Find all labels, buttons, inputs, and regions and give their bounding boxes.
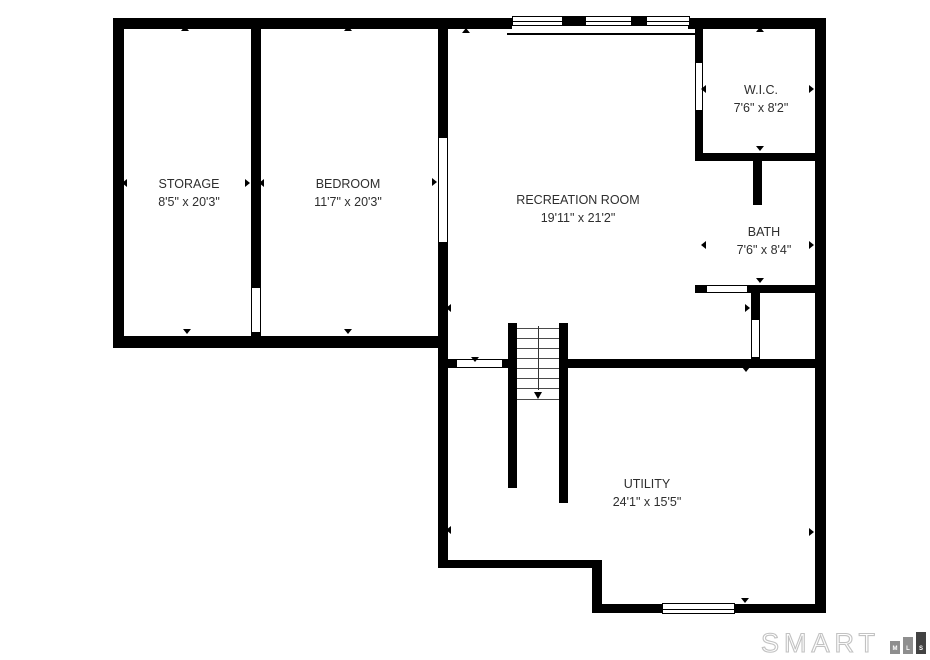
wall-outer-top-left (113, 18, 512, 29)
wall-measure-tick (756, 278, 764, 283)
wall-bath-interior-stub (753, 161, 762, 205)
window-bay-inner-face (507, 33, 697, 35)
room-dimensions: 7'6" x 8'2" (734, 99, 789, 117)
wall-measure-tick (471, 357, 479, 362)
room-name: UTILITY (613, 475, 682, 493)
room-label-bedroom: BEDROOM11'7" x 20'3" (314, 175, 382, 211)
room-name: RECREATION ROOM (516, 191, 639, 209)
wall-measure-tick (183, 329, 191, 334)
wall-wic-bath-divider (695, 153, 826, 161)
window-rec-window-1 (512, 16, 563, 26)
wall-measure-tick (245, 179, 250, 187)
door-opening-storage-bedroom-door (251, 288, 261, 332)
wall-measure-tick (809, 85, 814, 93)
wall-measure-tick (701, 241, 706, 249)
wall-measure-tick (756, 27, 764, 32)
window-rec-window-3 (646, 16, 690, 26)
wall-measure-tick (701, 85, 706, 93)
room-name: BATH (737, 223, 792, 241)
window-glass-line (513, 21, 562, 22)
logo-bar-letter: M (890, 646, 900, 653)
window-rec-window-2 (585, 16, 632, 26)
wall-bath-south (747, 285, 815, 293)
room-label-bath: BATH7'6" x 8'4" (737, 223, 792, 259)
room-dimensions: 24'1" x 15'5" (613, 493, 682, 511)
wall-stair-west (508, 323, 517, 488)
room-dimensions: 11'7" x 20'3" (314, 193, 382, 211)
room-dimensions: 7'6" x 8'4" (737, 241, 792, 259)
door-opening-bedroom-rec-opening (438, 138, 448, 242)
room-label-storage: STORAGE8'5" x 20'3" (158, 175, 220, 211)
room-name: STORAGE (158, 175, 220, 193)
wall-measure-tick (181, 26, 189, 31)
wall-measure-tick (122, 179, 127, 187)
smartmls-logo-text: SMART (761, 632, 880, 654)
wall-measure-tick (809, 241, 814, 249)
room-name: BEDROOM (314, 175, 382, 193)
room-dimensions: 8'5" x 20'3" (158, 193, 220, 211)
wall-storage-bedroom-divider-upper (251, 29, 261, 288)
wall-measure-tick (462, 28, 470, 33)
wall-measure-tick (446, 304, 451, 312)
wall-measure-tick (741, 598, 749, 603)
wall-stair-east (559, 323, 568, 503)
room-label-recreation-room: RECREATION ROOM19'11" x 21'2" (516, 191, 639, 227)
wall-measure-tick (344, 329, 352, 334)
logo-bar-l: L (903, 637, 913, 654)
wall-measure-tick (756, 146, 764, 151)
logo-bar-letter: S (916, 646, 926, 653)
stair-tread (517, 399, 559, 400)
logo-bar-m: M (890, 641, 900, 654)
window-glass-line (663, 609, 734, 610)
wall-utility-south-west (438, 560, 602, 568)
wall-storage-bedroom-bottom (113, 336, 448, 348)
wall-rec-south-east (568, 359, 815, 368)
room-dimensions: 19'11" x 21'2" (516, 209, 639, 227)
window-glass-line (586, 21, 631, 22)
wall-bath-south-west-stub (695, 285, 707, 293)
wall-bedroom-rec-divider-upper (438, 29, 448, 138)
wall-rec-south-west-stub (448, 359, 457, 368)
room-name: W.I.C. (734, 81, 789, 99)
wall-measure-tick (344, 26, 352, 31)
smartmls-logo-bars: MLS (887, 632, 926, 654)
wall-measure-tick (742, 367, 750, 372)
room-label-wic: W.I.C.7'6" x 8'2" (734, 81, 789, 117)
door-opening-bath-door (707, 285, 747, 293)
door-opening-hall-door (751, 320, 760, 357)
room-label-utility: UTILITY24'1" x 15'5" (613, 475, 682, 511)
stair-down-arrow (534, 392, 542, 399)
wall-window-separator-1 (563, 16, 585, 26)
floor-plan: SMART MLS STORAGE8'5" x 20'3"BEDROOM11'7… (0, 0, 930, 660)
wall-measure-tick (432, 178, 437, 186)
wall-outer-right (815, 18, 826, 613)
window-utility-window (662, 603, 735, 614)
door-opening-rec-utility-door (457, 359, 502, 368)
wall-measure-tick (446, 526, 451, 534)
window-glass-line (647, 21, 689, 22)
wall-measure-tick (259, 179, 264, 187)
wall-measure-tick (745, 304, 750, 312)
wall-window-separator-2 (632, 16, 646, 26)
stair-direction-line (538, 326, 539, 390)
wall-hall-divider-upper (751, 293, 760, 320)
logo-bar-letter: L (903, 646, 913, 653)
smartmls-logo: SMART MLS (761, 632, 926, 654)
wall-bedroom-rec-divider-lower (438, 242, 448, 568)
wall-measure-tick (809, 528, 814, 536)
logo-bar-s: S (916, 632, 926, 654)
